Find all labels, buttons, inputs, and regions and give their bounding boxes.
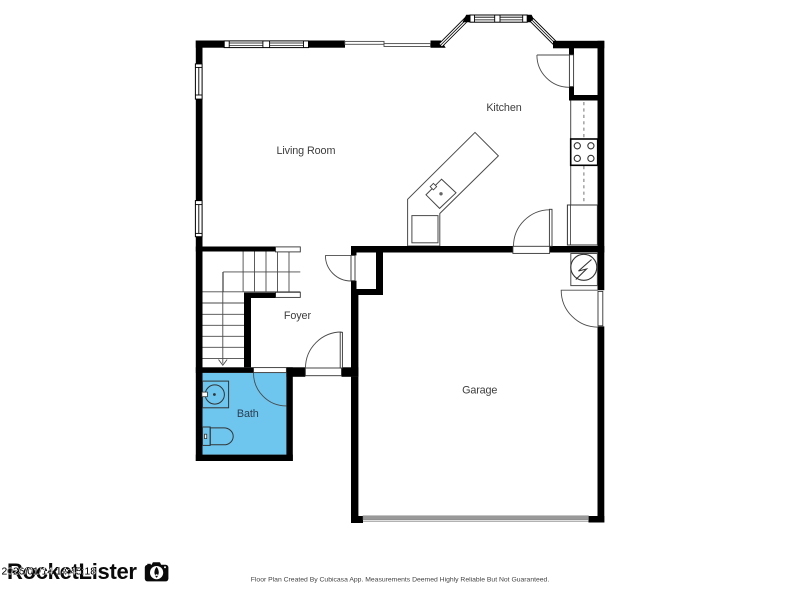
svg-text:Living Room: Living Room	[276, 145, 335, 157]
svg-text:Bath: Bath	[237, 408, 259, 420]
svg-text:Garage: Garage	[462, 385, 497, 397]
svg-text:2026/01/14 14:45:18: 2026/01/14 14:45:18	[2, 567, 97, 578]
svg-text:Foyer: Foyer	[284, 310, 312, 322]
svg-text:Floor Plan Created By Cubicasa: Floor Plan Created By Cubicasa App. Meas…	[251, 577, 550, 584]
svg-text:Kitchen: Kitchen	[486, 102, 521, 114]
